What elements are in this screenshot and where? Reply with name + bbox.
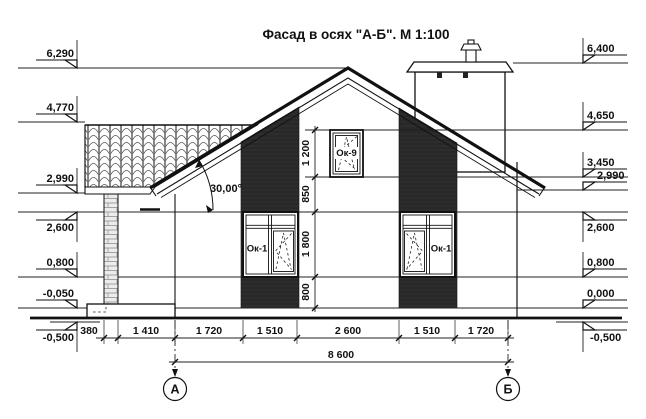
extension-lines [104,320,508,344]
elevation-mark: 4,770 [36,96,77,122]
vent-pipe-icon [461,40,481,62]
dimension-value: 850 [300,185,312,203]
window-ok9: Ок-9 [330,130,363,177]
elevation-value: 0,800 [587,257,615,269]
vertical-dimension-chain: 1 200 850 1 800 800 [300,126,328,312]
window-label-ok1-right: Ок-1 [431,244,452,255]
elevation-value: -0,500 [590,332,621,344]
axis-label-a: А [170,383,179,397]
dimension-total: 8 600 [328,349,354,361]
elevation-value: 2,600 [46,222,74,234]
elevation-value: 2,990 [46,173,74,185]
bottom-dimension-chain: 380 1 410 1 720 1 510 2 600 1 510 1 720 … [80,320,514,365]
elevation-mark: 2,600 [583,212,627,242]
elevation-mark: 6,400 [583,38,627,63]
dimension-value: 1 800 [300,231,312,257]
elevation-mark: 2,600 [36,212,77,242]
elevation-mark: 0,800 [583,252,627,277]
dimension-value: 1 510 [414,325,440,337]
elevation-value: -0,050 [43,288,74,300]
window-ok1-left: Ок-1 [243,212,298,277]
dimension-value: 1 510 [257,325,283,337]
elevation-mark: 0,000 [583,288,627,308]
elevation-value: 6,290 [46,48,74,60]
elevation-value: 6,400 [587,43,615,55]
brick-column [104,194,118,306]
facade-drawing: Ок-9 Ок-1 Ок-1 30,00° [0,0,646,419]
window-ok1-right: Ок-1 [400,212,455,277]
axis-label-b: Б [504,383,513,397]
elevation-value: 0,800 [46,257,74,269]
elevation-value: 4,770 [46,102,74,114]
elevation-mark: -0,050 [36,288,77,308]
elevation-value: 4,650 [587,110,615,122]
dimension-value: 1 720 [468,325,494,337]
dimension-value: 1 200 [300,140,312,166]
window-label-ok1-left: Ок-1 [247,244,268,255]
elevation-value: -0,500 [43,332,74,344]
dimension-value: 1 720 [196,325,222,337]
porch-slab [87,304,175,318]
chimney-support [437,72,442,78]
elevation-value: 2,990 [597,170,625,182]
elevation-mark: 6,290 [36,40,77,68]
dimension-value: 1 410 [133,325,159,337]
elevation-mark: 4,650 [583,102,627,130]
chimney-support [463,72,468,78]
elevation-value: 3,450 [587,157,615,169]
window-label-ok9: Ок-9 [336,148,357,159]
elevation-value: 0,000 [587,288,615,300]
drawing-title: Фасад в осях "А-Б". М 1:100 [262,27,449,42]
elevation-value: 2,600 [587,222,615,234]
facade-drawing-page: Ок-9 Ок-1 Ок-1 30,00° [0,0,646,419]
elevation-mark: 2,990 [36,168,77,193]
elevation-marks-right: 6,400 4,650 3,450 2,990 2,600 [556,38,628,352]
dimension-value: 2 600 [335,325,361,337]
dimension-value: 380 [80,325,98,337]
dimension-value: 800 [300,283,312,301]
angle-value: 30,00° [210,183,242,195]
elevation-mark: 0,800 [36,252,77,277]
elevation-mark: -0,500 [556,322,628,352]
